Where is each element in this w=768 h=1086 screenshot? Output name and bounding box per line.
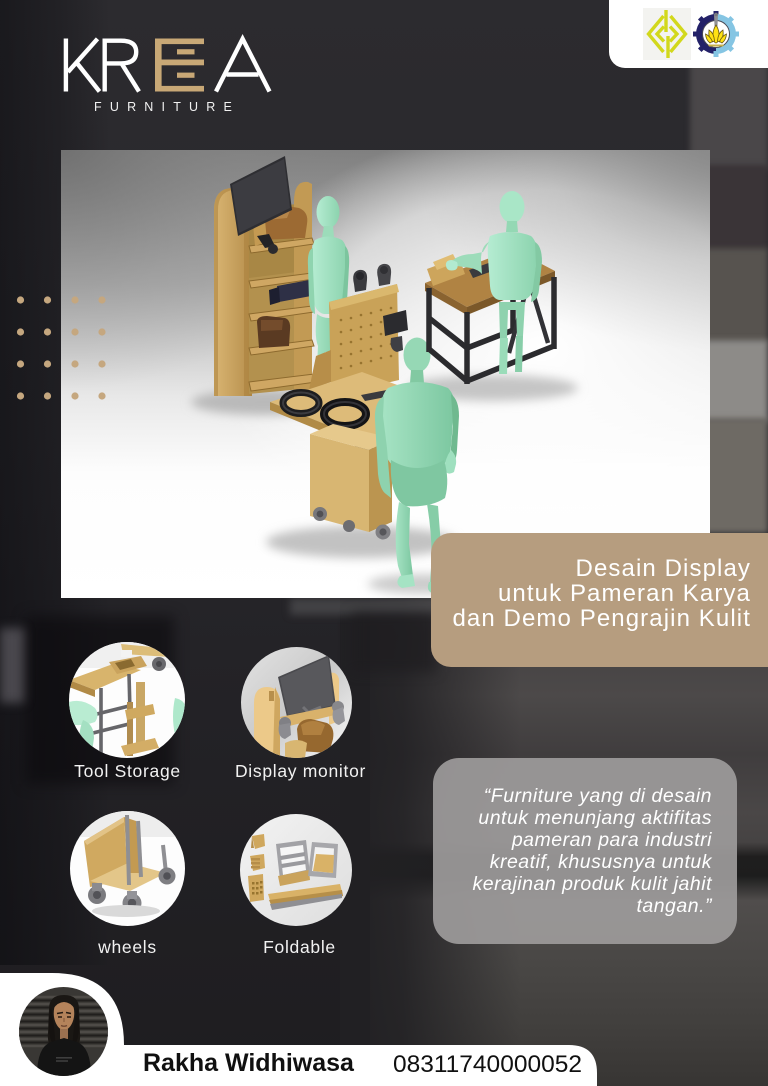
svg-text:FURNITURE: FURNITURE [94,100,240,114]
